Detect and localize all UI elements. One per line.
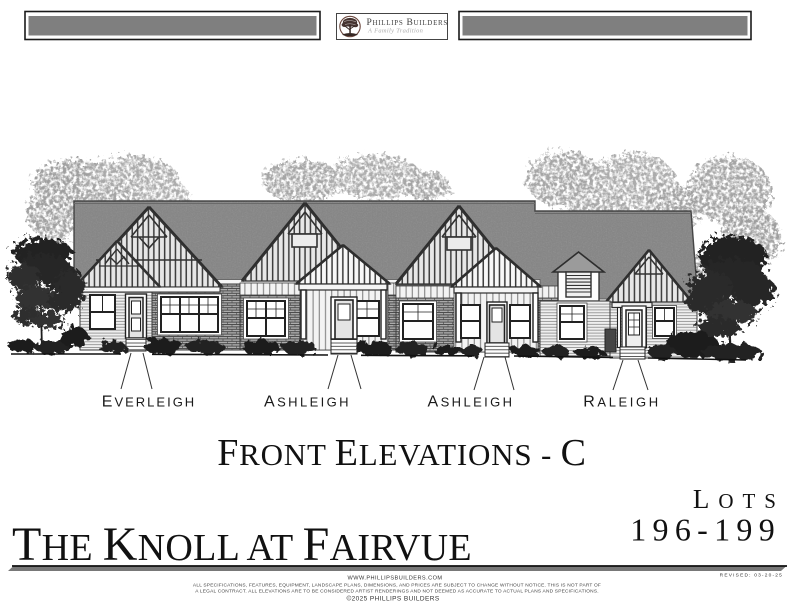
svg-text:EVERLEIGH: EVERLEIGH — [102, 394, 196, 411]
svg-text:A LEGAL CONTRACT. ALL ELEVATIO: A LEGAL CONTRACT. ALL ELEVATIONS ARE TO … — [195, 588, 599, 594]
svg-text:RALEIGH: RALEIGH — [583, 394, 660, 411]
svg-text:ASHLEIGH: ASHLEIGH — [428, 394, 515, 411]
svg-text:LOTS: LOTS — [693, 484, 785, 514]
svg-text:Phillips Builders: Phillips Builders — [367, 18, 449, 28]
svg-text:196-199: 196-199 — [630, 512, 781, 548]
svg-text:THE KNOLL AT FAIRVUE: THE KNOLL AT FAIRVUE — [12, 518, 472, 571]
svg-text:ASHLEIGH: ASHLEIGH — [264, 394, 351, 411]
svg-text:WWW.PHILLIPSBUILDERS.COM: WWW.PHILLIPSBUILDERS.COM — [347, 576, 442, 582]
svg-text:FRONT ELEVATIONS - C: FRONT ELEVATIONS - C — [217, 432, 587, 474]
svg-text:ALL SPECIFICATIONS, FEATURES,: ALL SPECIFICATIONS, FEATURES, EQUIPMENT,… — [193, 583, 601, 589]
svg-text:©2025 PHILLIPS BUILDERS: ©2025 PHILLIPS BUILDERS — [346, 595, 439, 603]
svg-text:REVISED: 03-20-25: REVISED: 03-20-25 — [720, 573, 783, 579]
svg-text:A Family Tradition: A Family Tradition — [367, 28, 423, 35]
